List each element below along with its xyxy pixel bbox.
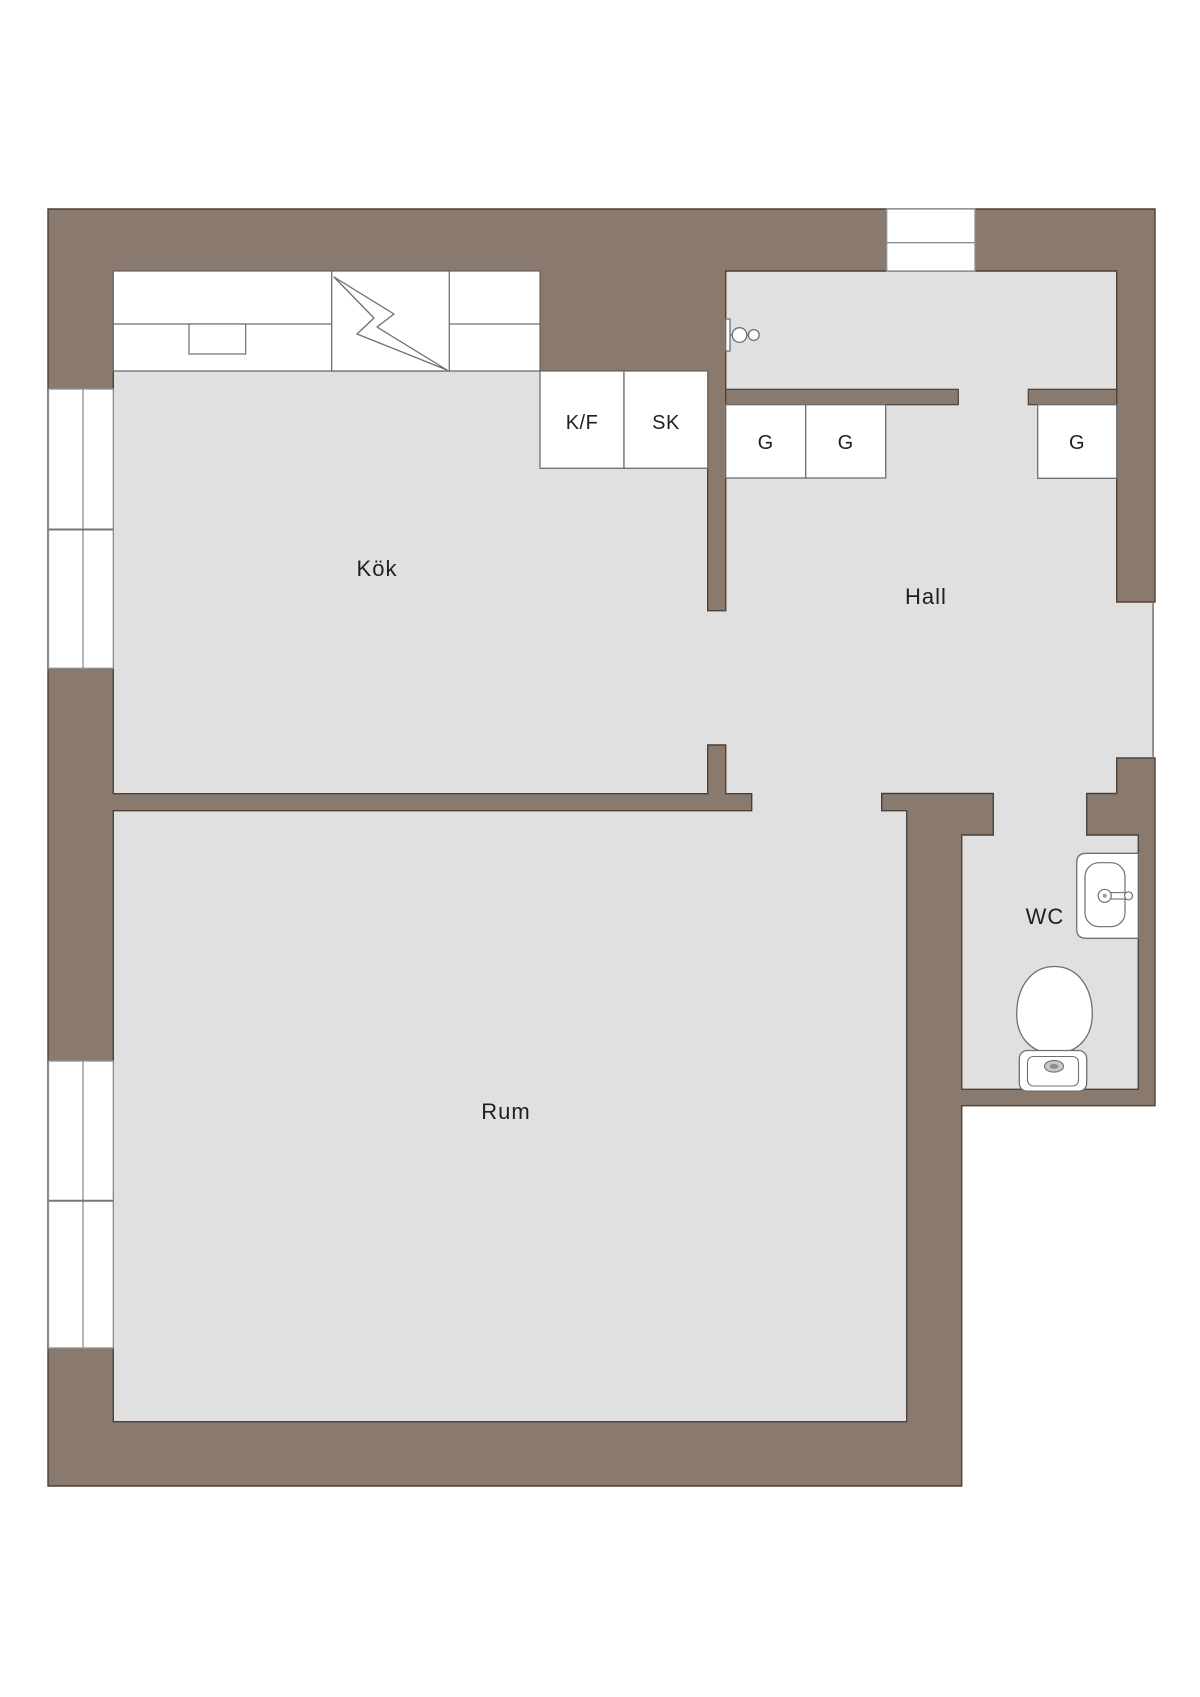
entrance-door xyxy=(887,209,975,271)
wardrobe-label-1: G xyxy=(758,432,774,454)
cleaning-cabinet-label: SK xyxy=(652,412,680,434)
kitchen-sink xyxy=(189,324,246,354)
wc-label: WC xyxy=(1026,904,1065,929)
kitchen-label: Kök xyxy=(357,556,398,581)
floor-plan-svg: K/F SK G G G xyxy=(0,0,1200,1697)
window-upper-left xyxy=(49,389,114,668)
toilet xyxy=(1017,967,1093,1092)
wardrobe-box-2: G xyxy=(806,405,886,478)
hall-label: Hall xyxy=(905,584,947,609)
wardrobe-label-2: G xyxy=(838,432,854,454)
cleaning-cabinet-box: SK xyxy=(624,371,708,468)
closet-wall-right xyxy=(1028,389,1116,404)
fridge-freezer-label: K/F xyxy=(566,412,599,434)
wc-sink xyxy=(1077,853,1139,938)
floor-plan-page: K/F SK G G G xyxy=(0,0,1200,1697)
wardrobe-label-3: G xyxy=(1069,432,1085,454)
wardrobe-box-3: G xyxy=(1038,405,1117,479)
fridge-freezer-box: K/F xyxy=(540,371,624,468)
kitchen-counter xyxy=(113,271,540,371)
room-label: Rum xyxy=(481,1099,530,1124)
wardrobe-box-1: G xyxy=(726,405,806,478)
closet-wall-left xyxy=(726,389,959,404)
toilet-bowl xyxy=(1017,967,1093,1054)
stove xyxy=(332,271,450,371)
window-lower-left xyxy=(49,1061,114,1348)
